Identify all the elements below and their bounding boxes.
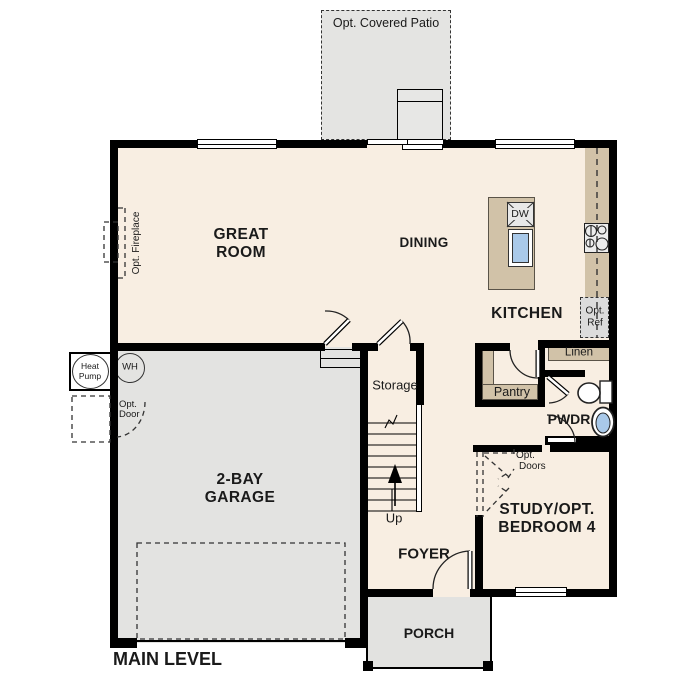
- linen-label: Linen: [565, 346, 593, 359]
- opt-ref-label: Opt. Ref: [586, 306, 605, 329]
- dishwasher-label: DW: [510, 208, 530, 220]
- floor-plan: Opt. Covered Patio GREAT ROOM DINING KIT…: [0, 0, 687, 687]
- opt-doors-label: Opt. Doors: [516, 450, 546, 472]
- storage-label: Storage: [372, 379, 418, 394]
- floorplan-linework: [0, 0, 687, 687]
- kitchen-label: KITCHEN: [491, 305, 563, 323]
- opt-heatpump-pad2: [72, 396, 110, 442]
- powder-label: PWDR: [548, 411, 591, 427]
- stair-treads: [368, 415, 416, 511]
- great-room-label: GREAT ROOM: [213, 226, 268, 262]
- main-level-title: MAIN LEVEL: [113, 650, 222, 670]
- water-heater-label: WH: [122, 363, 138, 374]
- powder-toilet: [592, 408, 614, 437]
- dining-label: DINING: [399, 235, 448, 251]
- opt-fireplace-label: Opt. Fireplace: [127, 208, 147, 278]
- heat-pump-label: Heat Pump: [79, 362, 101, 382]
- storage-door-arc: [402, 321, 410, 344]
- opt-fireplace-outline: [104, 208, 125, 278]
- garage-label: 2-BAY GARAGE: [205, 471, 275, 507]
- study-label: STUDY/OPT. BEDROOM 4: [498, 501, 595, 537]
- patio-label: Opt. Covered Patio: [333, 16, 439, 30]
- foyer-label: FOYER: [398, 545, 450, 562]
- pantry-label: Pantry: [494, 385, 530, 399]
- garage-entry-door-arc: [325, 311, 349, 320]
- stair-break-line: [385, 415, 397, 428]
- powder-sink: [578, 381, 612, 403]
- up-label: Up: [386, 512, 403, 527]
- garage-door-outline: [137, 543, 345, 639]
- pantry-door-arc: [510, 350, 538, 378]
- porch-label: PORCH: [404, 625, 455, 641]
- powder-door-arc: [549, 394, 568, 403]
- opt-door-label: Opt. Door: [119, 400, 140, 421]
